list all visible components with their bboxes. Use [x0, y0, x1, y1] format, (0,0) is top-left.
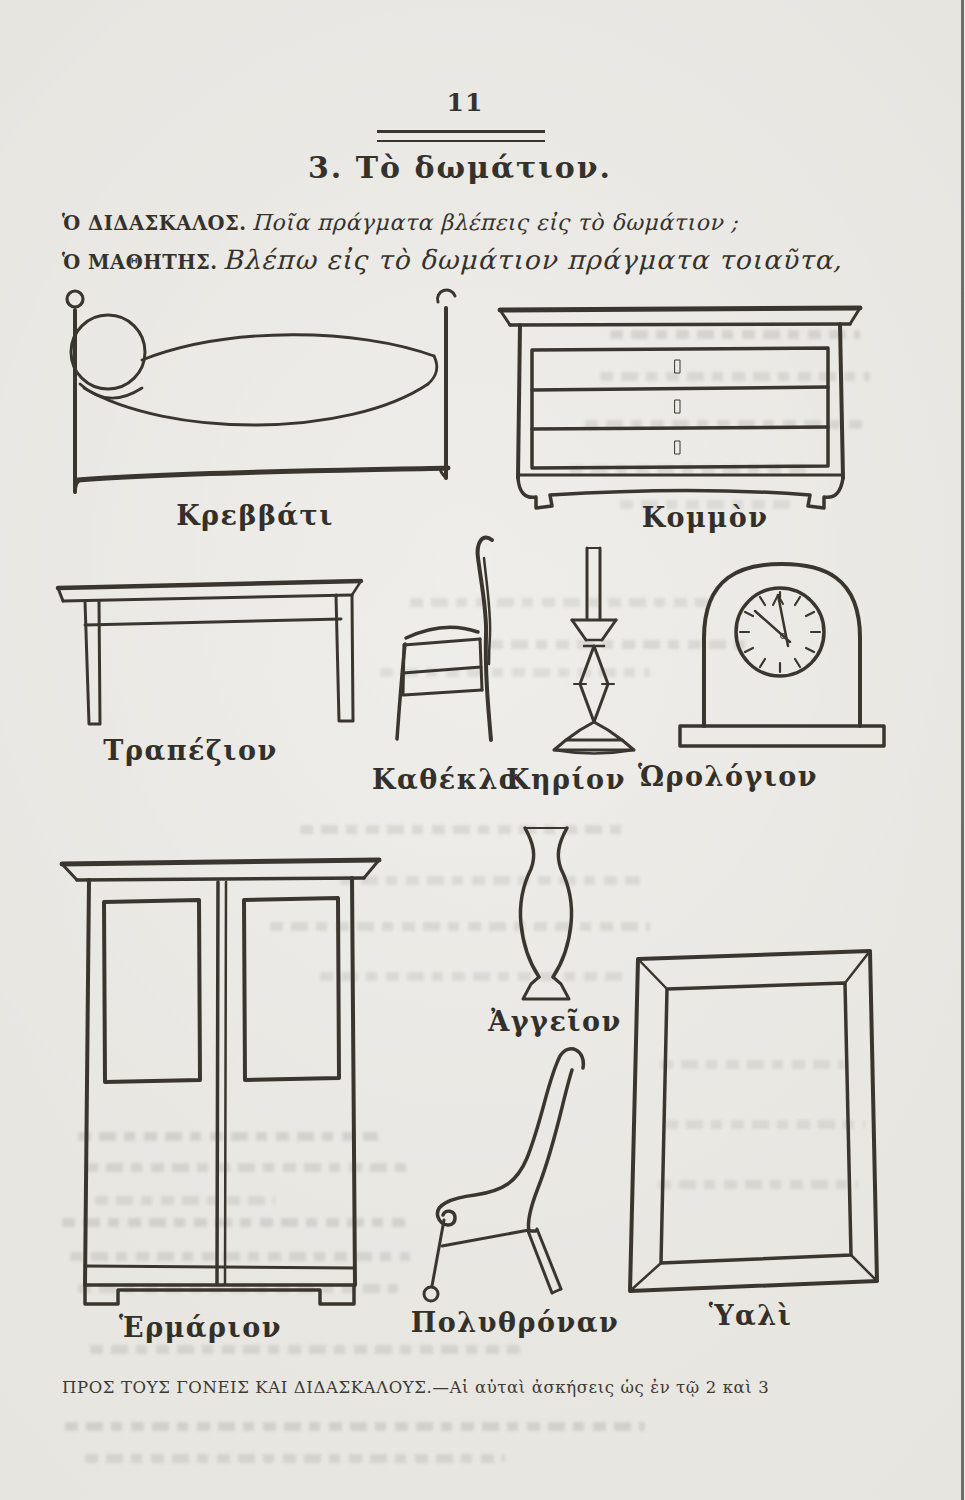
page-number: 11 [400, 88, 530, 117]
dialog-line-student: Ὁ ΜΑΘΗΤΗΣ. Βλέπω εἰς τὸ δωμάτιον πράγματ… [62, 244, 843, 275]
figure-label-table: Τραπέζιον [83, 735, 298, 766]
figure-label-mirror: Ὑαλὶ [688, 1300, 813, 1331]
chair-illustration [392, 532, 507, 744]
figure-label-wardrobe: Ἑρμάριον [88, 1312, 313, 1343]
figure-label-candle: Κηρίον [506, 764, 626, 795]
figure-label-commode: Κομμὸν [610, 502, 800, 533]
bleedthrough-artifact [85, 1454, 505, 1463]
figure-label-chair: Καθέκλα [372, 764, 521, 795]
wardrobe-illustration [58, 852, 383, 1307]
vase-illustration [498, 822, 598, 1010]
footer-note: ΠΡΟΣ ΤΟΥΣ ΓΟΝΕΙΣ ΚΑΙ ΔΙΔΑΣΚΑΛΟΥΣ.—Αἱ αὐτ… [62, 1378, 769, 1397]
mirror-illustration [622, 942, 890, 1302]
scan-edge-shadow [961, 0, 964, 1500]
clock-illustration [672, 538, 892, 750]
figure-label-vase: Ἀγγεῖον [465, 1006, 645, 1037]
bleedthrough-artifact [65, 1422, 645, 1431]
dialog-line-teacher: Ὁ ΔΙΔΑΣΚΑΛΟΣ. Ποῖα πράγματα βλέπεις εἰς … [62, 210, 738, 235]
candle-illustration [536, 542, 651, 760]
armchair-illustration [415, 1040, 595, 1308]
bed-illustration [58, 286, 464, 510]
student-speaker-label: Ὁ ΜΑΘΗΤΗΣ. [62, 251, 218, 274]
student-dialog-text: Βλέπω εἰς τὸ δωμάτιον πράγματα τοιαῦτα, [223, 244, 843, 275]
bleedthrough-artifact [90, 1345, 520, 1354]
section-title: 3. Τὸ δωμάτιον. [275, 150, 645, 185]
section-rule [377, 130, 545, 142]
figure-label-clock: Ὡρολόγιον [638, 761, 818, 792]
commode-illustration [494, 294, 866, 516]
scanned-book-page: 11 3. Τὸ δωμάτιον. Ὁ ΔΙΔΑΣΚΑΛΟΣ. Ποῖα πρ… [0, 0, 965, 1500]
figure-label-bed: Κρεββάτι [145, 500, 365, 531]
figure-label-armchair: Πολυθρόναν [390, 1307, 640, 1338]
teacher-dialog-text: Ποῖα πράγματα βλέπεις εἰς τὸ δωμάτιον ; [252, 210, 739, 235]
teacher-speaker-label: Ὁ ΔΙΔΑΣΚΑΛΟΣ. [62, 212, 247, 235]
table-illustration [52, 572, 367, 732]
